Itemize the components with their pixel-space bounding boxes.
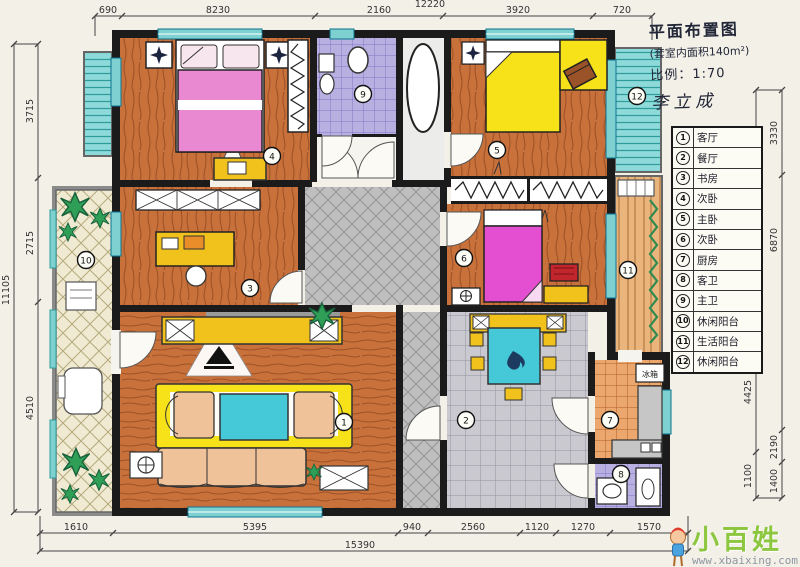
svg-text:11105: 11105: [1, 275, 12, 305]
stool: [505, 388, 522, 400]
svg-text:7: 7: [607, 417, 613, 427]
watermark-url: www.xbaixing.com: [692, 554, 798, 567]
rug-red: [550, 264, 578, 281]
bench: [544, 286, 588, 303]
legend-label: 休闲阳台: [694, 354, 739, 369]
legend-label: 次卧: [694, 191, 718, 206]
sink: [348, 47, 368, 73]
svg-text:9: 9: [360, 91, 366, 101]
room-number-bath-master: 9: [355, 86, 372, 103]
legend-num-circle: 10: [676, 314, 690, 328]
basin: [603, 484, 621, 498]
svg-text:3: 3: [247, 285, 253, 295]
svg-text:690: 690: [99, 5, 117, 16]
svg-text:2190: 2190: [769, 435, 780, 459]
svg-text:1: 1: [341, 419, 347, 429]
sofa-three-seat: [158, 448, 306, 486]
dimensions-bottom: 1610 5395 940 2560 1120 1270 1570 15390: [37, 516, 691, 554]
svg-text:10: 10: [80, 257, 92, 267]
svg-text:1400: 1400: [769, 469, 780, 493]
legend-num-circle: 2: [676, 151, 690, 165]
svg-text:12220: 12220: [415, 0, 445, 10]
toilet-bowl: [320, 74, 334, 94]
toilet-tank: [319, 54, 334, 72]
svg-text:1570: 1570: [637, 522, 661, 533]
title-line1: 平面布置图: [648, 13, 799, 42]
watermark: 小百姓 www.xbaixing.com: [666, 527, 798, 567]
legend-row: 4次卧: [673, 188, 761, 208]
shower: [636, 468, 660, 506]
armchair-right: [294, 392, 334, 438]
svg-text:4510: 4510: [25, 396, 36, 420]
legend-label: 休闲阳台: [694, 314, 739, 329]
legend-num-circle: 12: [676, 355, 690, 369]
room-number-bath-guest: 8: [613, 466, 630, 483]
svg-text:4: 4: [269, 153, 275, 163]
legend-table: 1客厅 2餐厅 3书房 4次卧 5主卧 6次卧 7厨房 8客卫 9主卫 10休闲…: [671, 126, 763, 374]
svg-text:1270: 1270: [571, 522, 595, 533]
title-signature: 李立成: [651, 83, 800, 113]
legend-label: 主卧: [694, 212, 718, 227]
watermark-brand: 小百姓: [692, 528, 798, 554]
balcony-top-left-bay: [84, 52, 112, 156]
stool: [471, 357, 484, 370]
svg-text:8: 8: [618, 471, 624, 481]
svg-text:11: 11: [622, 267, 633, 277]
bathtub: [407, 44, 439, 132]
armchair-left: [174, 392, 214, 438]
svg-text:940: 940: [403, 522, 421, 533]
legend-row: 5主卧: [673, 209, 761, 229]
legend-row: 9主卫: [673, 290, 761, 310]
legend-row: 12休闲阳台: [673, 351, 761, 371]
sink-basin: [652, 443, 661, 452]
legend-row: 8客卫: [673, 270, 761, 290]
svg-text:1610: 1610: [64, 522, 88, 533]
watermark-mascot-icon: [666, 527, 690, 567]
legend-num-circle: 11: [676, 335, 690, 349]
legend-num-circle: 1: [676, 131, 690, 145]
legend-row: 11生活阳台: [673, 331, 761, 351]
room-number-bedroom-tl: 4: [264, 148, 281, 165]
svg-text:3920: 3920: [506, 5, 530, 16]
legend-row: 2餐厅: [673, 147, 761, 167]
room-number-balcony-left: 10: [78, 252, 95, 269]
room-number-study: 3: [242, 280, 259, 297]
balcony-left-leisure: [50, 186, 114, 516]
room-number-kitchen: 7: [602, 412, 619, 429]
legend-num-circle: 6: [676, 233, 690, 247]
svg-text:5395: 5395: [243, 522, 267, 533]
legend-row: 1客厅: [673, 128, 761, 147]
stool: [543, 357, 556, 370]
legend-label: 主卫: [694, 293, 718, 308]
svg-text:720: 720: [613, 5, 631, 16]
svg-text:4425: 4425: [743, 380, 754, 404]
svg-text:3715: 3715: [25, 99, 36, 123]
legend-label: 厨房: [694, 253, 718, 268]
svg-text:2715: 2715: [25, 231, 36, 255]
legend-row: 10休闲阳台: [673, 311, 761, 331]
legend-num-circle: 4: [676, 192, 690, 206]
coffee-table: [220, 394, 288, 440]
svg-text:6: 6: [461, 255, 467, 265]
legend-num-circle: 5: [676, 212, 690, 226]
title-line2: (套室内面积140m²): [649, 40, 799, 61]
room-number-dining: 2: [458, 412, 475, 429]
legend-num-circle: 7: [676, 253, 690, 267]
stool: [543, 333, 556, 346]
title-block: 平面布置图 (套室内面积140m²) 比例：1:70 李立成: [648, 13, 800, 113]
fridge-label: 冰箱: [642, 369, 658, 379]
svg-text:1100: 1100: [743, 464, 754, 488]
legend-row: 6次卧: [673, 229, 761, 249]
legend-label: 次卧: [694, 232, 718, 247]
room-number-bedroom-tr: 5: [489, 142, 506, 159]
wardrobe: [288, 40, 308, 132]
legend-label: 客卫: [694, 273, 718, 288]
dimensions-left: 3715 2715 4510 11105: [1, 41, 41, 515]
legend-num-circle: 9: [676, 294, 690, 308]
legend-row: 7厨房: [673, 249, 761, 269]
room-number-balcony-right: 11: [620, 262, 637, 279]
svg-text:6870: 6870: [769, 228, 780, 252]
stool: [470, 333, 483, 346]
room-number-living: 1: [336, 414, 353, 431]
room-number-balcony-top: 12: [629, 88, 646, 105]
sink-basin: [641, 443, 650, 452]
floor-hall: [305, 187, 440, 305]
legend-row: 3书房: [673, 168, 761, 188]
svg-text:2160: 2160: [367, 5, 391, 16]
legend-label: 客厅: [694, 130, 718, 145]
legend-label: 餐厅: [694, 151, 718, 166]
legend-label: 书房: [694, 171, 718, 186]
legend-label: 生活阳台: [694, 334, 739, 349]
svg-text:2: 2: [463, 417, 469, 427]
title-line3: 比例：1:70: [650, 59, 800, 83]
svg-text:3330: 3330: [769, 121, 780, 145]
floor-plan-page: 冰箱 1 2 3 4 5 6 7 8 9 10 11 12 690 8230 2…: [0, 0, 800, 567]
svg-text:1120: 1120: [525, 522, 549, 533]
svg-text:2560: 2560: [461, 522, 485, 533]
svg-text:8230: 8230: [206, 5, 230, 16]
legend-num-circle: 8: [676, 273, 690, 287]
legend-num-circle: 3: [676, 171, 690, 185]
svg-text:12: 12: [631, 93, 642, 103]
room-number-bedroom-mr: 6: [456, 250, 473, 267]
svg-text:15390: 15390: [345, 540, 375, 551]
svg-text:5: 5: [494, 147, 500, 157]
